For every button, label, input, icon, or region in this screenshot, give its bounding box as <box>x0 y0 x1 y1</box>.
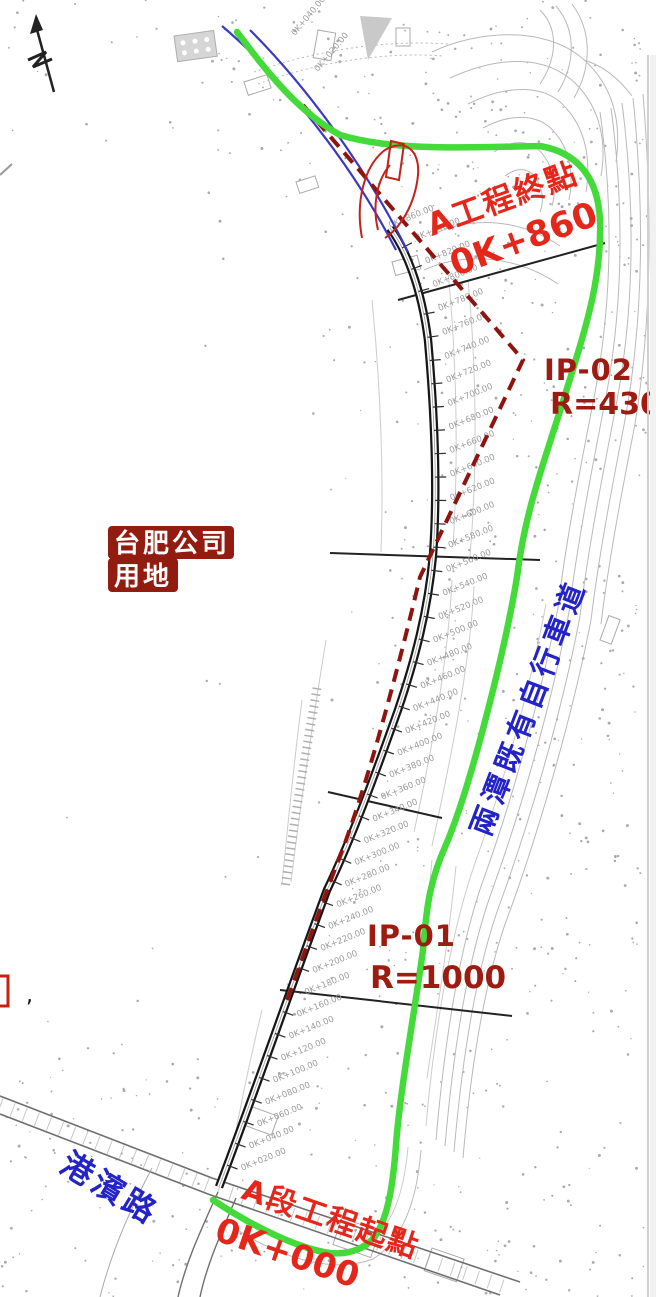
sheet-margin <box>650 55 656 1297</box>
station-tick <box>433 407 444 408</box>
landowner-line2: 用地 <box>114 562 172 592</box>
ip01-radius: R=1000 <box>370 960 506 996</box>
ip02-name: IP-02 <box>544 353 633 387</box>
station-tick <box>434 430 445 431</box>
landowner-line1: 台肥公司 <box>114 528 230 559</box>
ip01-name: IP-01 <box>367 919 456 953</box>
map-svg: 0K+020.000K+040.000K+060.000K+080.000K+1… <box>0 0 656 1297</box>
site-plan: 0K+020.000K+040.000K+060.000K+080.000K+1… <box>0 0 656 1297</box>
station-tick <box>432 383 443 384</box>
station-tick <box>434 547 445 548</box>
stray-mark: , <box>26 983 33 1008</box>
ip02-radius: R=430 <box>550 387 656 422</box>
building-icon <box>174 30 217 61</box>
